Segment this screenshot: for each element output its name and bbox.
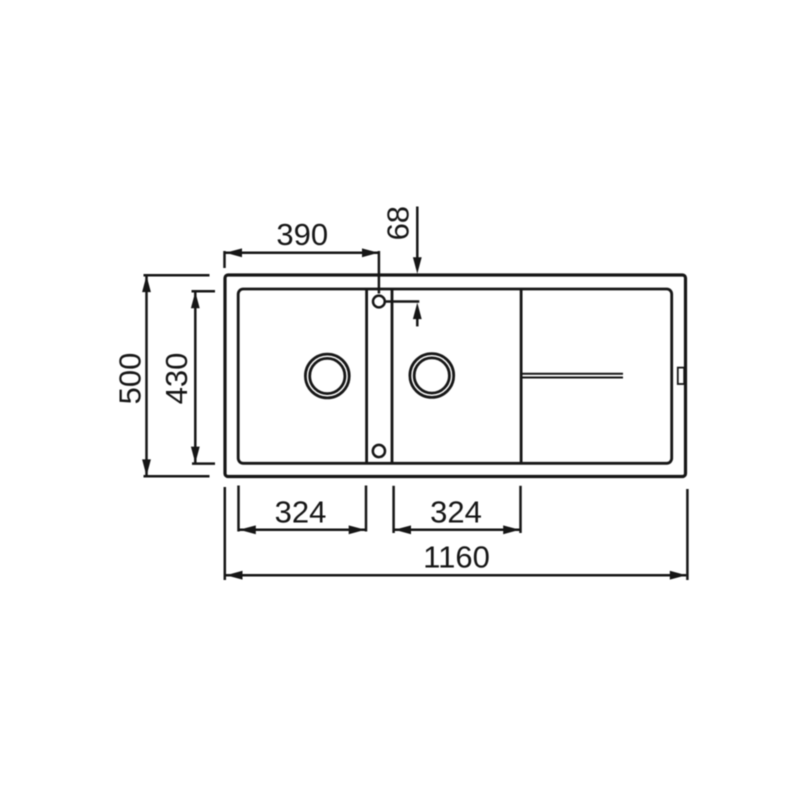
svg-text:1160: 1160 [423,540,490,575]
svg-text:324: 324 [275,495,327,530]
svg-text:430: 430 [159,353,194,405]
svg-text:390: 390 [276,217,328,252]
svg-text:324: 324 [430,495,482,530]
svg-text:500: 500 [112,353,147,405]
svg-text:68: 68 [381,206,416,240]
